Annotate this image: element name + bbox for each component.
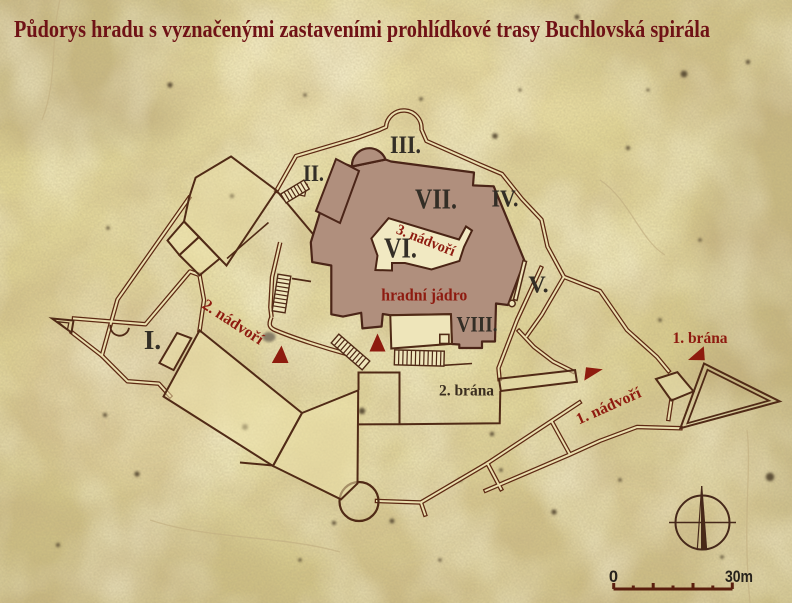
svg-text:IV.: IV. xyxy=(492,187,519,213)
svg-text:1. brána: 1. brána xyxy=(672,330,727,347)
svg-text:I.: I. xyxy=(144,325,161,355)
svg-text:VII.: VII. xyxy=(415,185,457,216)
svg-text:Půdorys hradu s vyznačenými za: Půdorys hradu s vyznačenými zastaveními … xyxy=(14,16,710,43)
svg-text:2. brána: 2. brána xyxy=(439,383,494,400)
svg-text:30m: 30m xyxy=(725,568,753,586)
svg-text:V.: V. xyxy=(528,273,548,299)
svg-text:hradní jádro: hradní jádro xyxy=(381,286,467,305)
svg-text:VIII.: VIII. xyxy=(457,312,498,337)
svg-text:II.: II. xyxy=(303,161,324,186)
svg-text:0: 0 xyxy=(609,568,618,586)
svg-text:III.: III. xyxy=(390,132,421,159)
